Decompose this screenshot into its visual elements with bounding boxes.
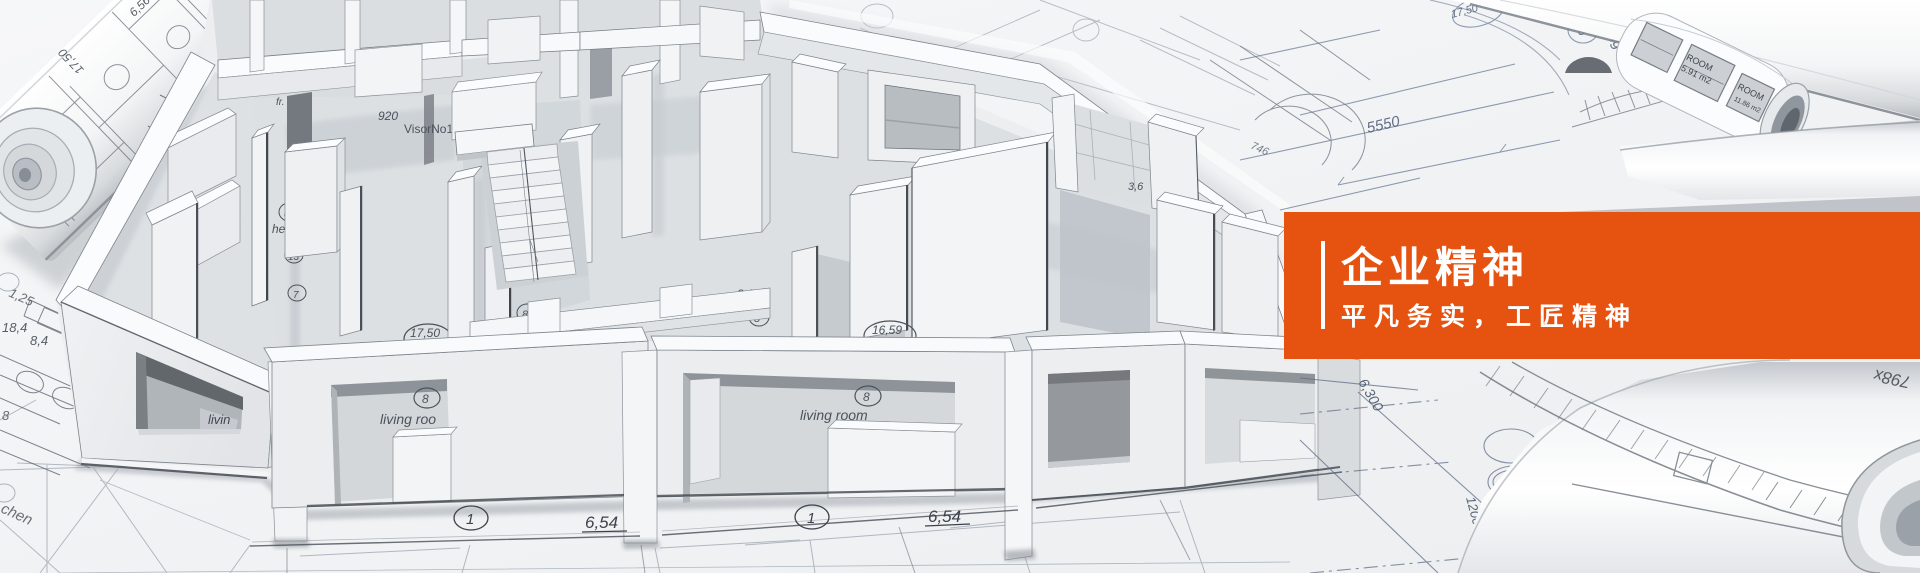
svg-text:8: 8 xyxy=(2,408,10,423)
svg-text:1: 1 xyxy=(807,510,815,527)
svg-text:fr.: fr. xyxy=(276,97,285,108)
svg-text:6,54: 6,54 xyxy=(928,507,961,526)
svg-text:3,6: 3,6 xyxy=(1128,181,1144,193)
svg-text:8: 8 xyxy=(863,390,870,404)
svg-text:livin: livin xyxy=(208,412,230,427)
svg-text:1: 1 xyxy=(466,511,474,528)
svg-text:920: 920 xyxy=(378,109,398,123)
svg-text:living roo: living roo xyxy=(380,411,436,427)
svg-text:VisorNo1: VisorNo1 xyxy=(404,122,453,136)
svg-text:16,59: 16,59 xyxy=(872,323,902,337)
svg-text:18,4: 18,4 xyxy=(2,320,27,335)
svg-text:17,50: 17,50 xyxy=(410,326,440,340)
svg-text:8,4: 8,4 xyxy=(30,333,48,348)
svg-text:8: 8 xyxy=(422,392,429,406)
svg-text:7: 7 xyxy=(293,290,299,301)
svg-text:6,54: 6,54 xyxy=(585,513,618,532)
